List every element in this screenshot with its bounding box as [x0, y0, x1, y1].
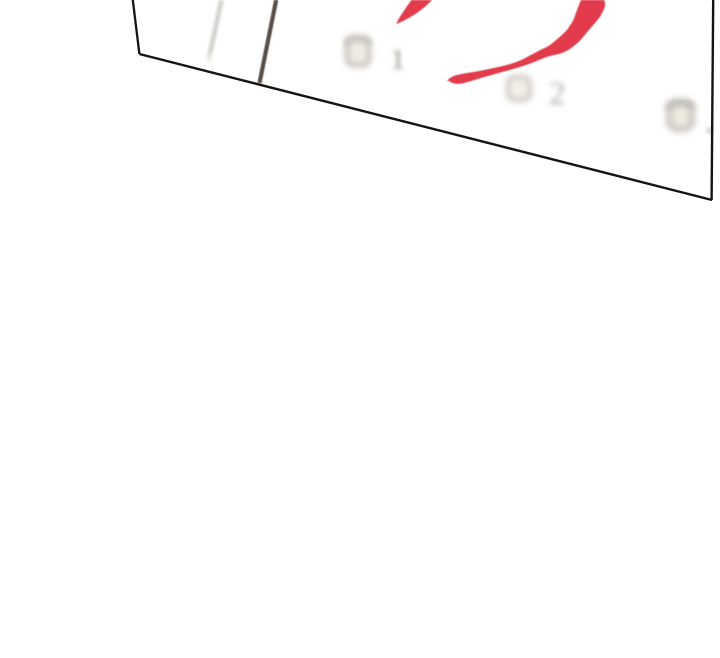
svg-text:2: 2: [549, 76, 566, 112]
svg-text:1: 1: [391, 44, 406, 76]
